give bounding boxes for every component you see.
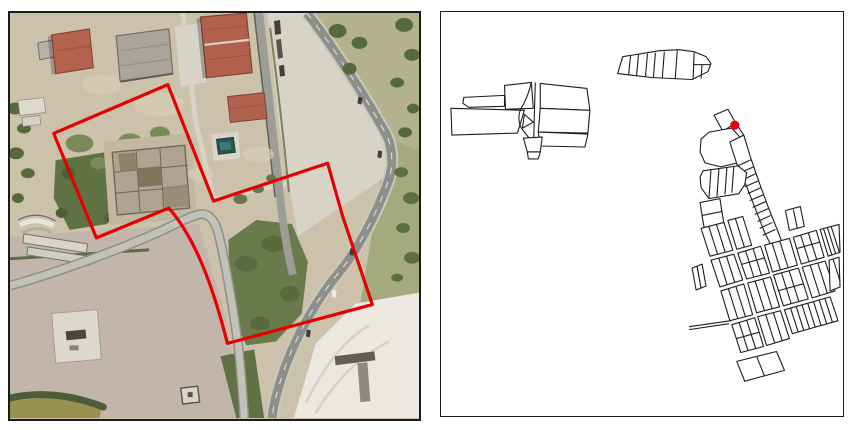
aerial-photo bbox=[10, 13, 419, 419]
red-roof-building bbox=[227, 93, 267, 123]
tree bbox=[391, 274, 403, 282]
shrub bbox=[233, 194, 247, 204]
tree bbox=[407, 104, 419, 114]
tree bbox=[21, 168, 35, 178]
parcel-block bbox=[700, 166, 747, 199]
tree bbox=[329, 24, 347, 38]
tree bbox=[351, 37, 367, 49]
site-marker-dot bbox=[730, 121, 739, 130]
shrub bbox=[280, 286, 300, 302]
red-roof-building bbox=[52, 29, 94, 74]
cadastral-map bbox=[441, 12, 843, 416]
parcel bbox=[538, 132, 588, 147]
shrub bbox=[90, 157, 106, 169]
parcel bbox=[463, 95, 505, 107]
aerial-photo-panel bbox=[8, 11, 421, 421]
shrub bbox=[235, 256, 257, 272]
ruin-room bbox=[137, 166, 163, 187]
shrub bbox=[250, 317, 270, 331]
cadastral-map-panel bbox=[440, 11, 844, 417]
truck bbox=[279, 65, 285, 77]
dirt-patch bbox=[81, 75, 121, 95]
parcel bbox=[527, 152, 540, 159]
small-building bbox=[188, 392, 193, 397]
tree bbox=[396, 223, 410, 233]
site-location-figure bbox=[0, 0, 857, 430]
road-line bbox=[689, 324, 729, 330]
gray-roof-building bbox=[116, 29, 173, 82]
ruin-room bbox=[118, 152, 137, 172]
parcel bbox=[538, 108, 590, 133]
shed bbox=[18, 98, 46, 116]
road-line bbox=[689, 321, 731, 327]
tree bbox=[394, 167, 408, 177]
tree bbox=[395, 18, 413, 32]
tree bbox=[390, 78, 404, 88]
shed bbox=[70, 345, 79, 350]
parcel bbox=[451, 108, 524, 135]
tree bbox=[56, 208, 68, 218]
parcel bbox=[523, 137, 542, 152]
dirt-patch bbox=[242, 146, 274, 162]
pool-water bbox=[219, 141, 231, 150]
parcel bbox=[540, 83, 590, 110]
truck bbox=[274, 20, 281, 35]
tree bbox=[343, 63, 357, 75]
ruin-room bbox=[163, 184, 190, 208]
shrub bbox=[261, 236, 285, 252]
tree bbox=[403, 192, 419, 204]
shed bbox=[22, 115, 41, 126]
tree bbox=[398, 127, 412, 137]
parcel bbox=[505, 82, 534, 109]
parcel bbox=[522, 114, 533, 128]
shrub bbox=[66, 134, 94, 152]
tree bbox=[12, 193, 24, 203]
